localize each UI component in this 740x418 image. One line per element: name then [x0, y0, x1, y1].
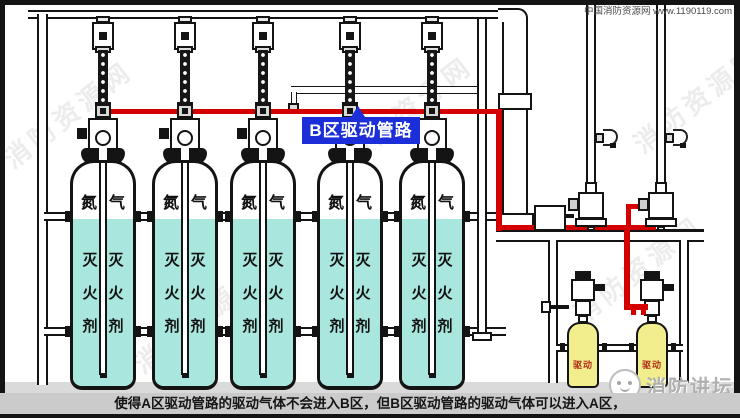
flexible-hose: [258, 50, 268, 105]
gas-label-right: 气: [354, 189, 374, 213]
agent-char: 火: [410, 286, 428, 302]
pilot-detail: [182, 108, 188, 114]
agent-char: 灭: [241, 253, 259, 269]
cylinder-clamp: [312, 326, 317, 337]
solenoid-cap: [575, 271, 591, 279]
gas-label-left: 氮: [408, 189, 428, 213]
siphon-tube: [99, 163, 107, 375]
cylinder-clamp: [383, 211, 388, 222]
siphon-tube-foot: [100, 373, 107, 378]
agent-char: 剂: [107, 319, 125, 335]
agent-char: 剂: [328, 319, 346, 335]
zone-b-selector-riser: [656, 5, 666, 195]
frame-border-top: [0, 0, 740, 5]
siphon-tube-foot: [260, 373, 267, 378]
cylinder-clamp: [465, 211, 470, 222]
agent-label-right: 灭 火 剂: [354, 253, 372, 352]
agent-char: 灭: [436, 253, 454, 269]
drive-pipe-riser: [477, 19, 487, 334]
siphon-tube: [428, 163, 436, 375]
pressure-gauge: [95, 130, 111, 146]
cylinder-clamp: [65, 326, 70, 337]
cylinder-clamp: [147, 326, 152, 337]
cylinder-clamp: [394, 211, 399, 222]
agent-char: 剂: [163, 319, 181, 335]
riser-foot: [472, 332, 492, 341]
pressure-gauge: [255, 130, 271, 146]
drive-bottle-label: 驱动: [638, 358, 666, 371]
siphon-tube: [181, 163, 189, 375]
discharge-head-detail: [346, 32, 354, 40]
valve-side-tab: [77, 128, 87, 139]
agent-cylinder-assembly: 氮 气 灭 火 剂 灭 火 剂: [310, 16, 390, 390]
actuator-lever: [663, 284, 674, 291]
cylinder-clamp: [465, 326, 470, 337]
selector-valve-actuator: [568, 198, 579, 211]
agent-char: 灭: [107, 253, 125, 269]
gas-label-left: 氮: [326, 189, 346, 213]
drive-bottle-body: 驱动: [567, 322, 599, 388]
agent-char: 剂: [436, 319, 454, 335]
cylinder-clamp: [383, 326, 388, 337]
agent-char: 火: [436, 286, 454, 302]
agent-label-left: 灭 火 剂: [328, 253, 346, 352]
gas-label-right: 气: [436, 189, 456, 213]
control-box-link: [566, 214, 574, 218]
main-down-column: [502, 22, 528, 218]
pipe-fitting: [541, 301, 551, 313]
siphon-tube: [259, 163, 267, 375]
agent-char: 火: [328, 286, 346, 302]
agent-char: 灭: [410, 253, 428, 269]
b-zone-pipeline-label: B区驱动管路: [302, 117, 420, 144]
control-box: [534, 205, 566, 231]
stand-tabletop: [496, 229, 704, 242]
agent-label-right: 灭 火 剂: [436, 253, 454, 352]
agent-char: 灭: [328, 253, 346, 269]
frame-border-left: [0, 0, 5, 393]
column-coupling: [498, 93, 532, 110]
agent-char: 火: [81, 286, 99, 302]
site-watermark: 中国消防资源网 www.1190119.com: [0, 3, 732, 17]
selector-valve-body: [578, 192, 604, 219]
pilot-detail: [429, 108, 435, 114]
cylinder-clamp: [147, 211, 152, 222]
selector-valve-nub: [587, 226, 595, 231]
agent-char: 灭: [163, 253, 181, 269]
pilot-detail: [100, 108, 106, 114]
gas-label-left: 氮: [239, 189, 259, 213]
agent-char: 灭: [81, 253, 99, 269]
agent-label-left: 灭 火 剂: [163, 253, 181, 352]
flexible-hose: [427, 50, 437, 105]
selector-valve-actuator: [638, 198, 649, 211]
flexible-hose: [345, 50, 355, 105]
valve-side-tab: [237, 128, 247, 139]
cylinder-clamp: [394, 326, 399, 337]
discharge-head-detail: [259, 32, 267, 40]
bottle-valve: [575, 300, 591, 316]
gas-label-right: 气: [267, 189, 287, 213]
pipe-flange-tick: [631, 310, 636, 315]
agent-char: 剂: [241, 319, 259, 335]
cylinder-clamp: [312, 211, 317, 222]
siphon-tube-foot: [182, 373, 189, 378]
cylinder-body: 氮 气 灭 火 剂 灭 火 剂: [152, 160, 218, 390]
cylinder-body: 氮 气 灭 火 剂 灭 火 剂: [70, 160, 136, 390]
label-pointer: [351, 106, 365, 117]
pressure-switch-nub: [680, 143, 686, 148]
selector-valve-body: [648, 192, 674, 219]
selector-valve-nub: [657, 226, 665, 231]
agent-label-right: 灭 火 剂: [107, 253, 125, 352]
pressure-switch-nub: [610, 143, 616, 148]
logo-mouth: [620, 386, 630, 392]
agent-char: 剂: [81, 319, 99, 335]
cylinder-body: 氮 气 灭 火 剂 灭 火 剂: [317, 160, 383, 390]
gas-label-right: 气: [107, 189, 127, 213]
diagram-canvas: 消防资源网 消防资源网 消防资源网 消防资源网 消防资源网: [0, 0, 740, 418]
agent-label-left: 灭 火 剂: [410, 253, 428, 352]
logo-eye: [617, 381, 621, 385]
frame-border-bottom: [0, 414, 740, 418]
cylinder-clamp: [225, 211, 230, 222]
agent-label-left: 灭 火 剂: [241, 253, 259, 352]
b-zone-drive-pipe-down: [496, 109, 502, 231]
solenoid-cap: [644, 271, 660, 279]
cylinder-clamp: [296, 211, 301, 222]
flexible-hose: [98, 50, 108, 105]
agent-char: 剂: [267, 319, 285, 335]
gas-label-right: 气: [189, 189, 209, 213]
cylinder-clamp: [65, 211, 70, 222]
flexible-hose: [180, 50, 190, 105]
agent-char: 剂: [189, 319, 207, 335]
cylinder-clamp: [225, 326, 230, 337]
siphon-tube: [346, 163, 354, 375]
agent-char: 灭: [267, 253, 285, 269]
drive-gas-bottle-assembly: 驱动: [553, 271, 613, 389]
cylinder-clamp: [136, 326, 141, 337]
agent-char: 灭: [354, 253, 372, 269]
agent-cylinder-assembly: 氮 气 灭 火 剂 灭 火 剂: [223, 16, 303, 390]
gas-label-left: 氮: [161, 189, 181, 213]
pressure-gauge: [177, 130, 193, 146]
zone-a-selector-riser: [586, 5, 596, 195]
drive-bottle-label: 驱动: [569, 358, 597, 371]
logo-eye: [628, 381, 632, 385]
valve-side-tab: [159, 128, 169, 139]
siphon-tube-foot: [429, 373, 436, 378]
agent-char: 火: [354, 286, 372, 302]
agent-cylinder-assembly: 氮 气 灭 火 剂 灭 火 剂: [145, 16, 225, 390]
agent-char: 火: [163, 286, 181, 302]
pipe-flange-tick: [641, 310, 646, 315]
agent-char: 火: [241, 286, 259, 302]
agent-label-right: 灭 火 剂: [189, 253, 207, 352]
discharge-head-detail: [181, 32, 189, 40]
gas-label-left: 氮: [79, 189, 99, 213]
discharge-head-detail: [99, 32, 107, 40]
pilot-detail: [260, 108, 266, 114]
agent-char: 剂: [354, 319, 372, 335]
frame-border-right: [734, 0, 740, 393]
cylinder-body: 氮 气 灭 火 剂 灭 火 剂: [399, 160, 465, 390]
cylinder-body: 氮 气 灭 火 剂 灭 火 剂: [230, 160, 296, 390]
agent-char: 灭: [189, 253, 207, 269]
solenoid-actuator: [640, 279, 664, 301]
siphon-tube-foot: [347, 373, 354, 378]
cylinder-clamp: [136, 211, 141, 222]
solenoid-actuator: [571, 279, 595, 301]
agent-char: 剂: [410, 319, 428, 335]
caption-bar: 使得A区驱动管路的驱动气体不会进入B区，但B区驱动管路的驱动气体可以进入A区，: [0, 393, 740, 414]
agent-label-left: 灭 火 剂: [81, 253, 99, 352]
cylinder-clamp: [296, 326, 301, 337]
agent-cylinder-assembly: 氮 气 灭 火 剂 灭 火 剂: [63, 16, 143, 390]
agent-label-right: 灭 火 剂: [267, 253, 285, 352]
agent-char: 火: [189, 286, 207, 302]
agent-char: 火: [267, 286, 285, 302]
agent-cylinder-assembly: 氮 气 灭 火 剂 灭 火 剂: [392, 16, 472, 390]
agent-char: 火: [107, 286, 125, 302]
pressure-gauge: [424, 130, 440, 146]
discharge-head-detail: [428, 32, 436, 40]
b-zone-pipe-to-drive-bottle: [624, 229, 630, 310]
actuator-lever: [594, 284, 605, 291]
